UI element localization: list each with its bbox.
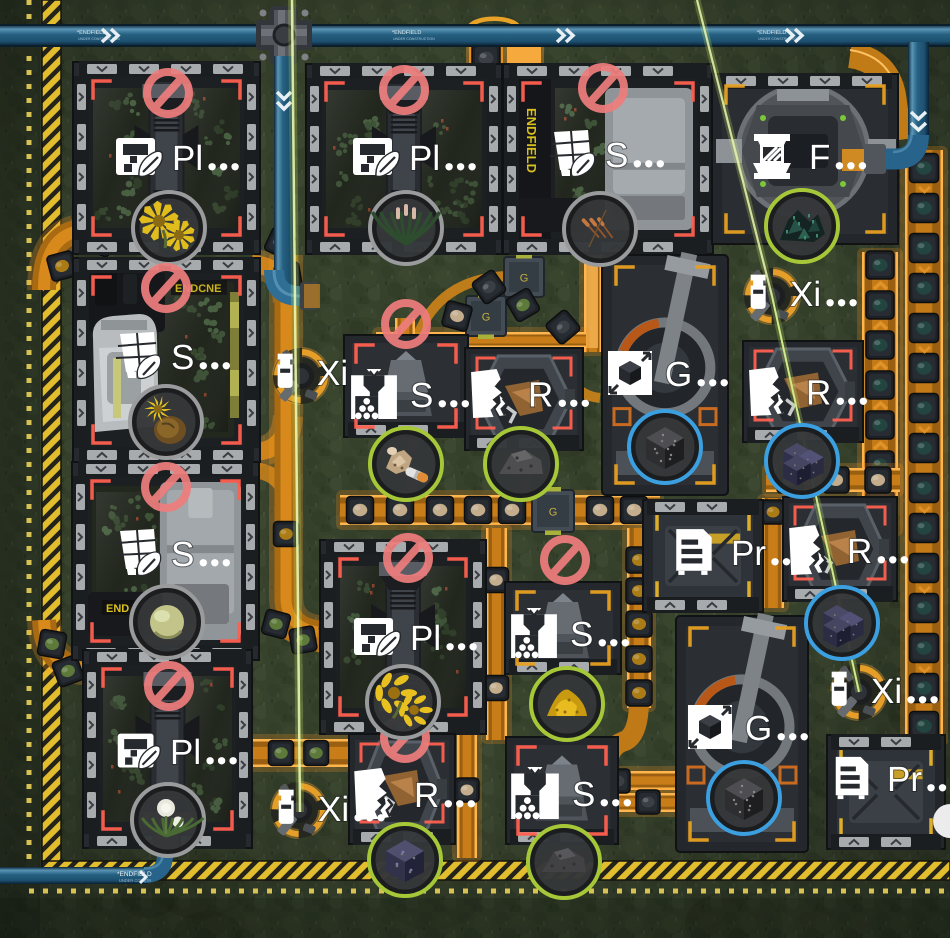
svg-text:*ENDFIELD: *ENDFIELD [757,30,786,36]
svg-text:F: F [809,138,830,177]
svg-text:ENDCNE: ENDCNE [175,283,221,295]
svg-text:Pl: Pl [170,733,201,772]
svg-text:Xi: Xi [871,672,902,711]
svg-text:Pr: Pr [887,760,922,799]
svg-text:*ENDFIELD: *ENDFIELD [392,30,421,36]
svg-text:END: END [106,603,129,615]
svg-text:G: G [549,507,558,519]
svg-text:G: G [745,709,772,748]
svg-text:ENDFIELD: ENDFIELD [524,108,539,173]
svg-text:R: R [414,776,439,815]
svg-text:Pr: Pr [731,534,766,573]
svg-text:S: S [171,535,194,574]
svg-text:G: G [482,312,491,324]
svg-text:Pl: Pl [172,139,203,178]
svg-text:R: R [528,376,553,415]
svg-text:S: S [570,615,593,654]
svg-text:UNDER CONSTRUCTION: UNDER CONSTRUCTION [758,37,800,41]
svg-text:S: S [410,376,433,415]
svg-text:Xi: Xi [317,354,348,393]
svg-text:UNDER CONSTRUCTION: UNDER CONSTRUCTION [393,37,435,41]
svg-text:S: S [605,136,628,175]
svg-text:G: G [520,273,529,285]
svg-text:UNDER CONSTR: UNDER CONSTR [119,878,151,883]
svg-text:Xi: Xi [790,275,821,314]
svg-text:R: R [847,532,872,571]
svg-text:Pl: Pl [410,619,441,658]
svg-text:Pl: Pl [409,139,440,178]
svg-text:S: S [572,775,595,814]
svg-text:Xi: Xi [318,790,349,829]
svg-text:S: S [171,338,194,377]
svg-text:G: G [665,355,692,394]
svg-text:R: R [806,374,831,413]
